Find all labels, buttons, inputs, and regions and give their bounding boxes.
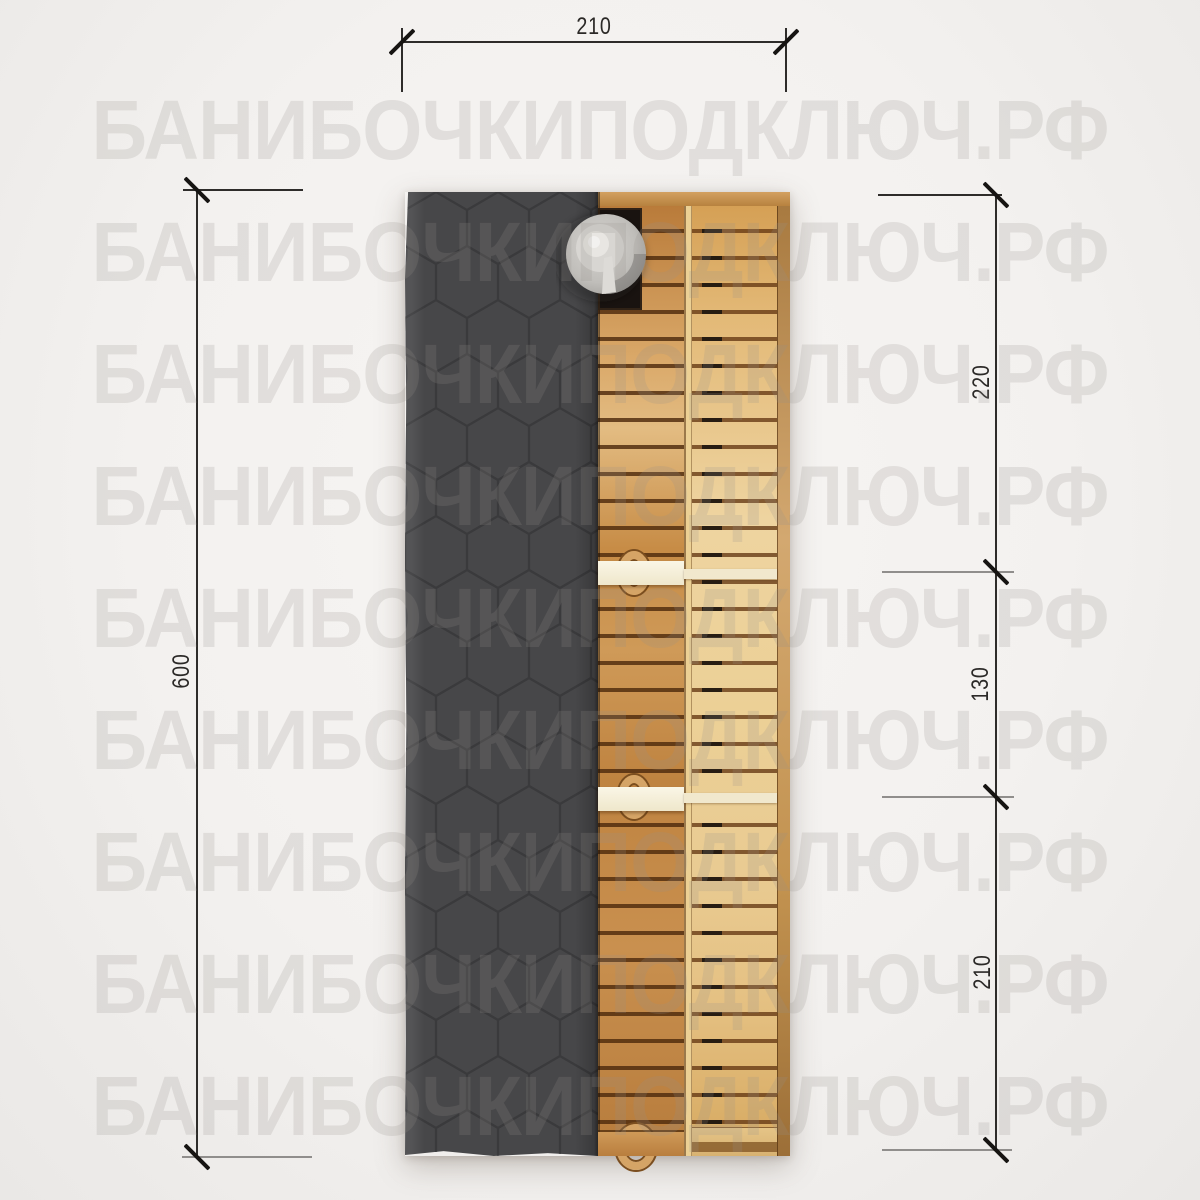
extension-line — [878, 194, 1002, 196]
bench-edge-plank — [684, 206, 692, 1156]
drawing-canvas: 210 600 220 130 210 БАНИБОЧКИПОДКЛЮЧ.РФБ… — [0, 0, 1200, 1200]
right-wall-plank — [777, 206, 790, 1156]
roof-wood-seam — [594, 192, 600, 1156]
partition-wall-1 — [598, 561, 684, 585]
dimension-label-segment-2: 130 — [967, 666, 995, 701]
dimension-line — [995, 195, 997, 1151]
slat-gap-marks — [702, 206, 722, 1128]
chimney-cap-icon — [556, 204, 660, 308]
partition-wall-2-thin — [684, 793, 777, 803]
dimension-label-width: 210 — [576, 13, 611, 41]
shingle-roof — [405, 192, 598, 1156]
dimension-label-segment-1: 220 — [968, 364, 996, 399]
dimension-label-total-length: 600 — [168, 653, 196, 688]
dimension-line — [196, 190, 198, 1158]
dimension-line — [401, 41, 787, 43]
bottom-bench-gap — [692, 1142, 777, 1152]
partition-wall-1-thin — [684, 569, 777, 579]
dimension-label-segment-3: 210 — [969, 954, 997, 989]
interior-floor-slats-left — [598, 206, 684, 1132]
roof-shading — [405, 192, 598, 1156]
entrance-door-plank — [598, 1132, 684, 1156]
watermark-text: БАНИБОЧКИПОДКЛЮЧ.РФ — [48, 88, 1152, 172]
partition-wall-2 — [598, 787, 684, 811]
